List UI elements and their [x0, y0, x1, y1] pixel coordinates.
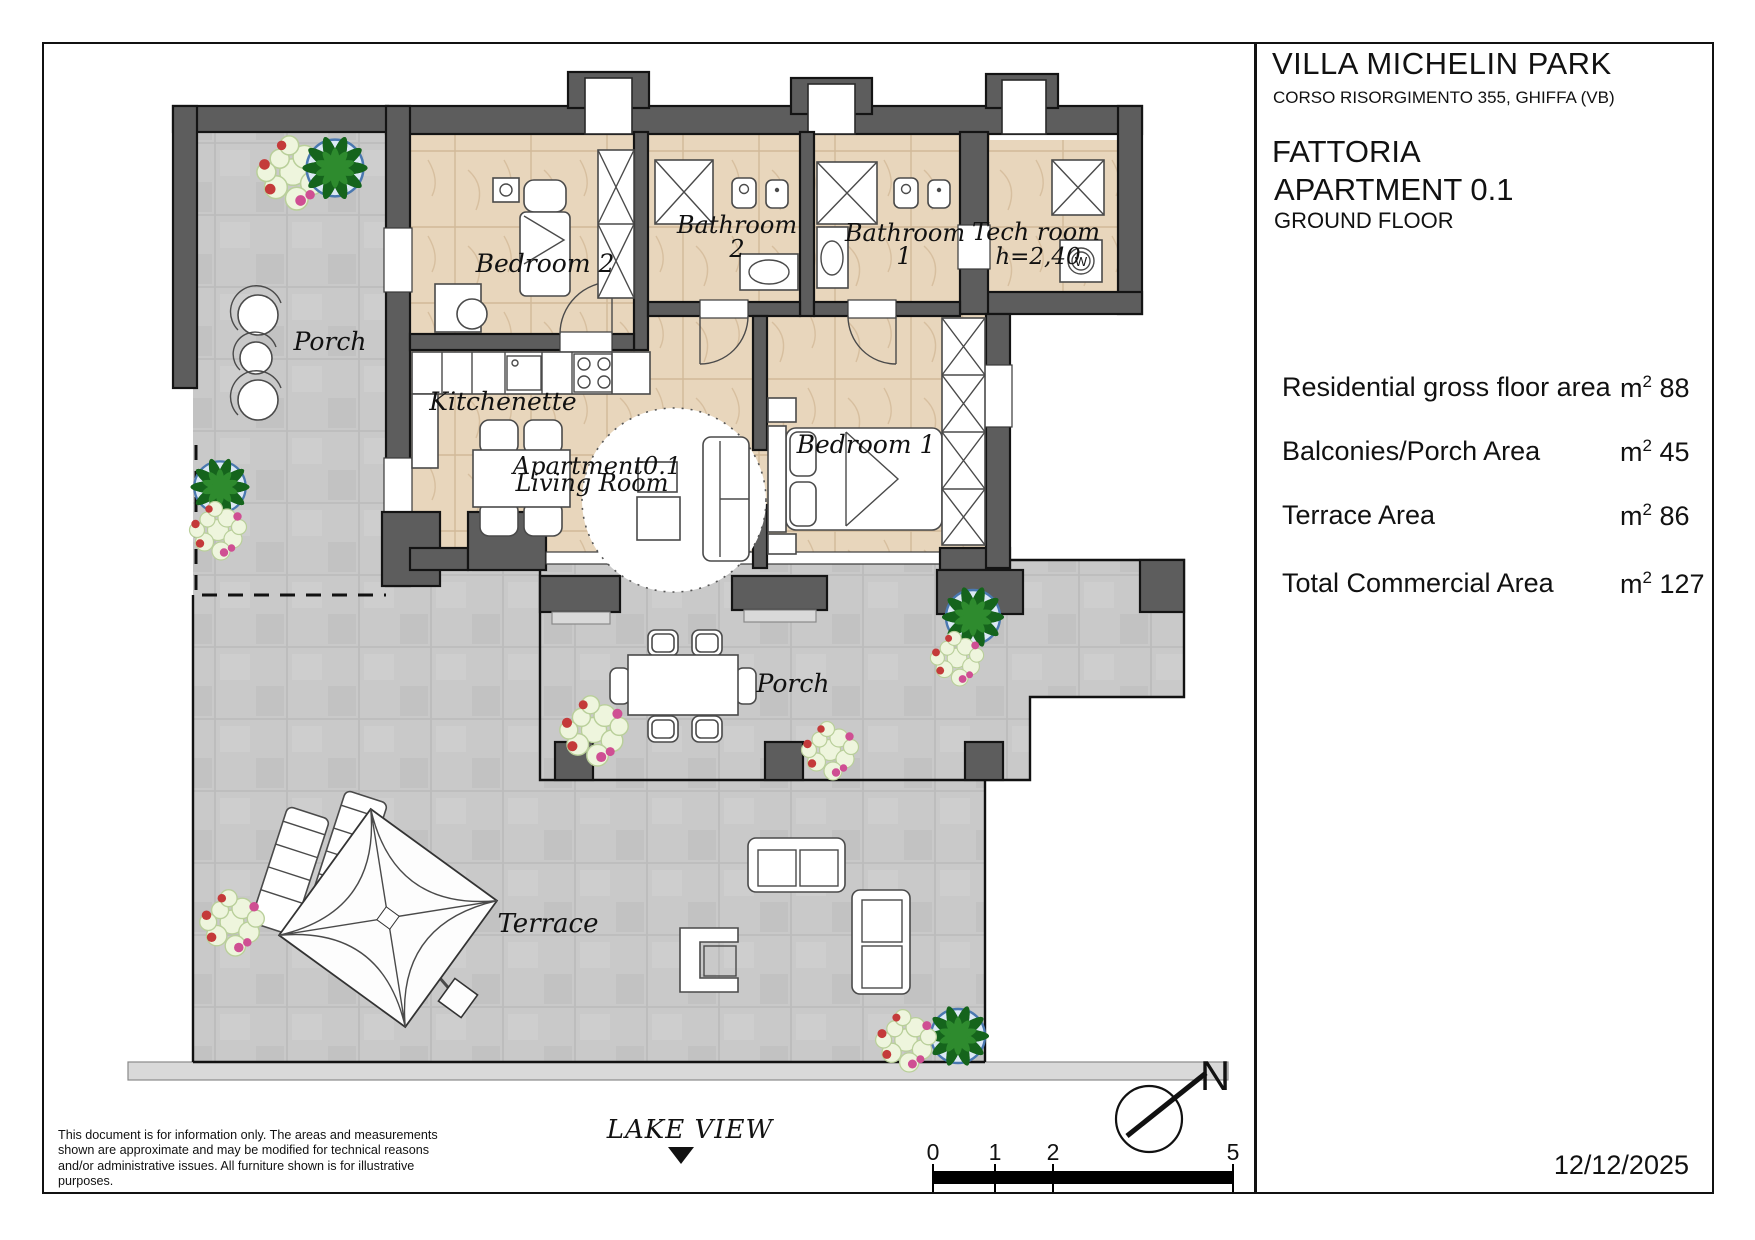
- nightstand: [768, 534, 796, 554]
- area-row-balconies: Balconies/Porch Area m2 45: [1282, 436, 1712, 467]
- scale-bar: 0 1 2 5: [927, 1139, 1240, 1192]
- porch-left-label: Porch: [293, 327, 367, 356]
- area-value: m2 86: [1620, 500, 1690, 532]
- area-value: m2 45: [1620, 436, 1690, 468]
- area-label: Balconies/Porch Area: [1282, 436, 1540, 466]
- tech-room-height: h=2,40: [995, 244, 1080, 270]
- scale-0: 0: [927, 1139, 940, 1165]
- floor-name: GROUND FLOOR: [1274, 208, 1454, 234]
- lake-view-marker: LAKE VIEW: [606, 1115, 775, 1164]
- building-name: FATTORIA: [1272, 134, 1421, 170]
- bedroom-2-label: Bedroom 2: [475, 249, 615, 278]
- area-value: m2 127: [1620, 568, 1705, 600]
- area-row-terrace: Terrace Area m2 86: [1282, 500, 1712, 531]
- area-label: Terrace Area: [1282, 500, 1435, 530]
- area-row-total: Total Commercial Area m2 127: [1282, 568, 1712, 599]
- pillow: [790, 482, 816, 526]
- area-value: m2 88: [1620, 372, 1690, 404]
- bedroom-1-label: Bedroom 1: [796, 430, 936, 459]
- terrace-label: Terrace: [497, 909, 598, 939]
- kitchenette-label: Kitchenette: [428, 387, 576, 416]
- north-label: N: [1200, 1052, 1230, 1099]
- disclaimer-text: This document is for information only. T…: [58, 1128, 460, 1189]
- area-label: Total Commercial Area: [1282, 568, 1554, 598]
- bidet: [766, 180, 788, 208]
- floor-plan-sheet: Bedroom 2 Bathroom 2 Bathroom 1: [0, 0, 1755, 1240]
- bathroom-1-number: 1: [896, 242, 911, 270]
- project-address: CORSO RISORGIMENTO 355, GHIFFA (VB): [1273, 88, 1615, 108]
- floor-plan-drawing: Bedroom 2 Bathroom 2 Bathroom 1: [44, 44, 1252, 1192]
- area-row-residential: Residential gross floor area m2 88: [1282, 372, 1712, 403]
- porch-table: [628, 655, 738, 715]
- living-room-label: Living Room: [514, 469, 668, 497]
- scale-1: 1: [989, 1139, 1002, 1165]
- title-panel-divider: [1254, 42, 1257, 1194]
- lakeside-walkway: [128, 1062, 1228, 1080]
- lake-view-label: LAKE VIEW: [606, 1115, 775, 1145]
- scale-5: 5: [1227, 1139, 1240, 1165]
- project-title: VILLA MICHELIN PARK: [1272, 46, 1612, 82]
- apartment-number: APARTMENT 0.1: [1274, 172, 1513, 208]
- headboard: [768, 426, 786, 532]
- bidet: [928, 180, 950, 208]
- tech-room-label: Tech room: [972, 218, 1100, 246]
- porch-main-label: Porch: [756, 669, 830, 698]
- area-label: Residential gross floor area: [1282, 372, 1611, 402]
- scale-2: 2: [1047, 1139, 1060, 1165]
- coffee-table: [637, 497, 680, 540]
- drawing-date: 12/12/2025: [1554, 1150, 1689, 1181]
- bathroom-2-number: 2: [728, 235, 744, 263]
- nightstand: [768, 398, 796, 422]
- lake-view-arrow-icon: [668, 1147, 694, 1164]
